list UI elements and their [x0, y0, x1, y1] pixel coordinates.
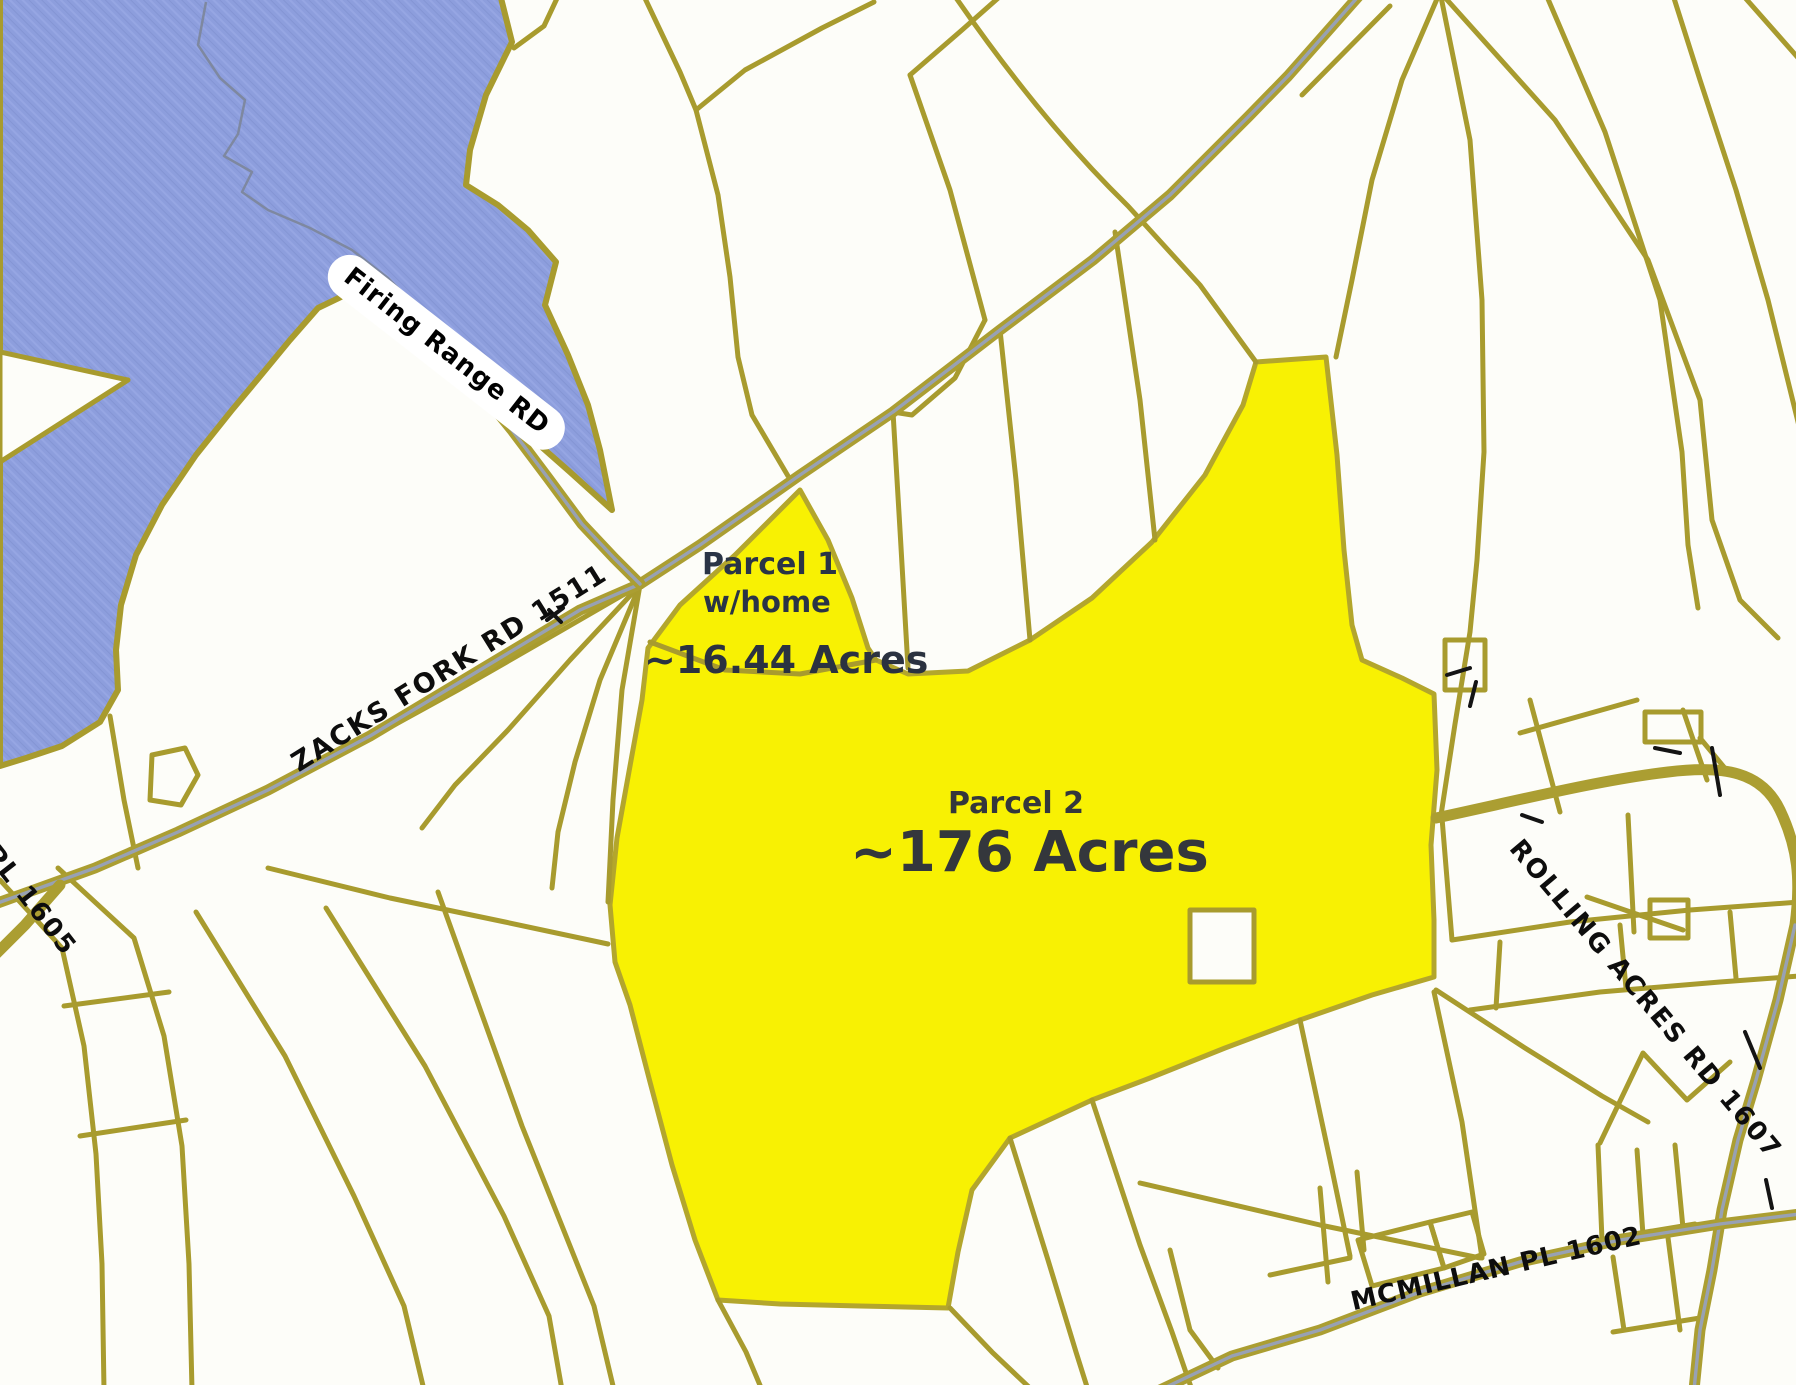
rolling-acres-road-centerline	[1694, 925, 1795, 1385]
excluded-parcel-notch	[1190, 910, 1254, 982]
parcel-2-acreage: ~176 Acres	[850, 820, 1209, 885]
parcel-1-note: w/home	[703, 585, 831, 619]
parcel-map: Firing Range RD ZACKS FORK RD 1511 PL 16…	[0, 0, 1796, 1385]
map-canvas	[0, 0, 1796, 1385]
parcel-2-label: Parcel 2	[948, 786, 1084, 821]
parcel-1-acreage: ~16.44 Acres	[644, 638, 928, 682]
parcel-1-label: Parcel 1	[702, 547, 838, 582]
